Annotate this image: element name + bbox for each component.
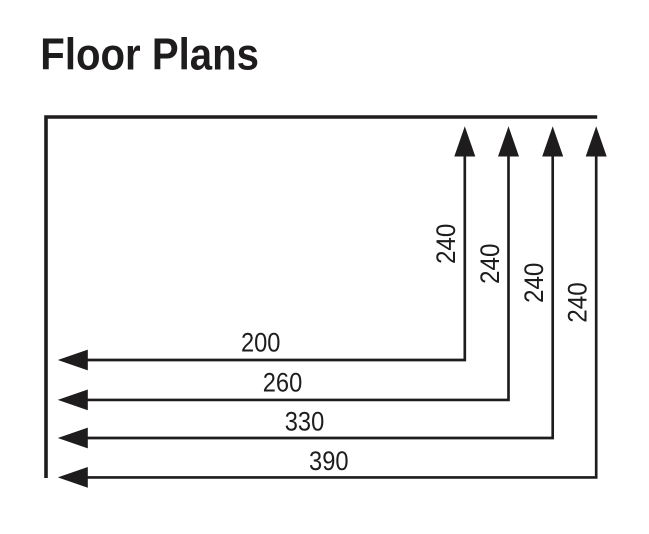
svg-text:240: 240: [475, 243, 505, 284]
svg-text:200: 200: [241, 328, 281, 358]
svg-text:240: 240: [519, 263, 549, 304]
svg-text:390: 390: [309, 446, 349, 476]
svg-text:260: 260: [263, 367, 303, 397]
svg-text:240: 240: [431, 224, 461, 264]
svg-text:330: 330: [285, 407, 325, 437]
svg-text:240: 240: [563, 282, 593, 323]
svg-text:Floor Plans: Floor Plans: [40, 30, 259, 79]
